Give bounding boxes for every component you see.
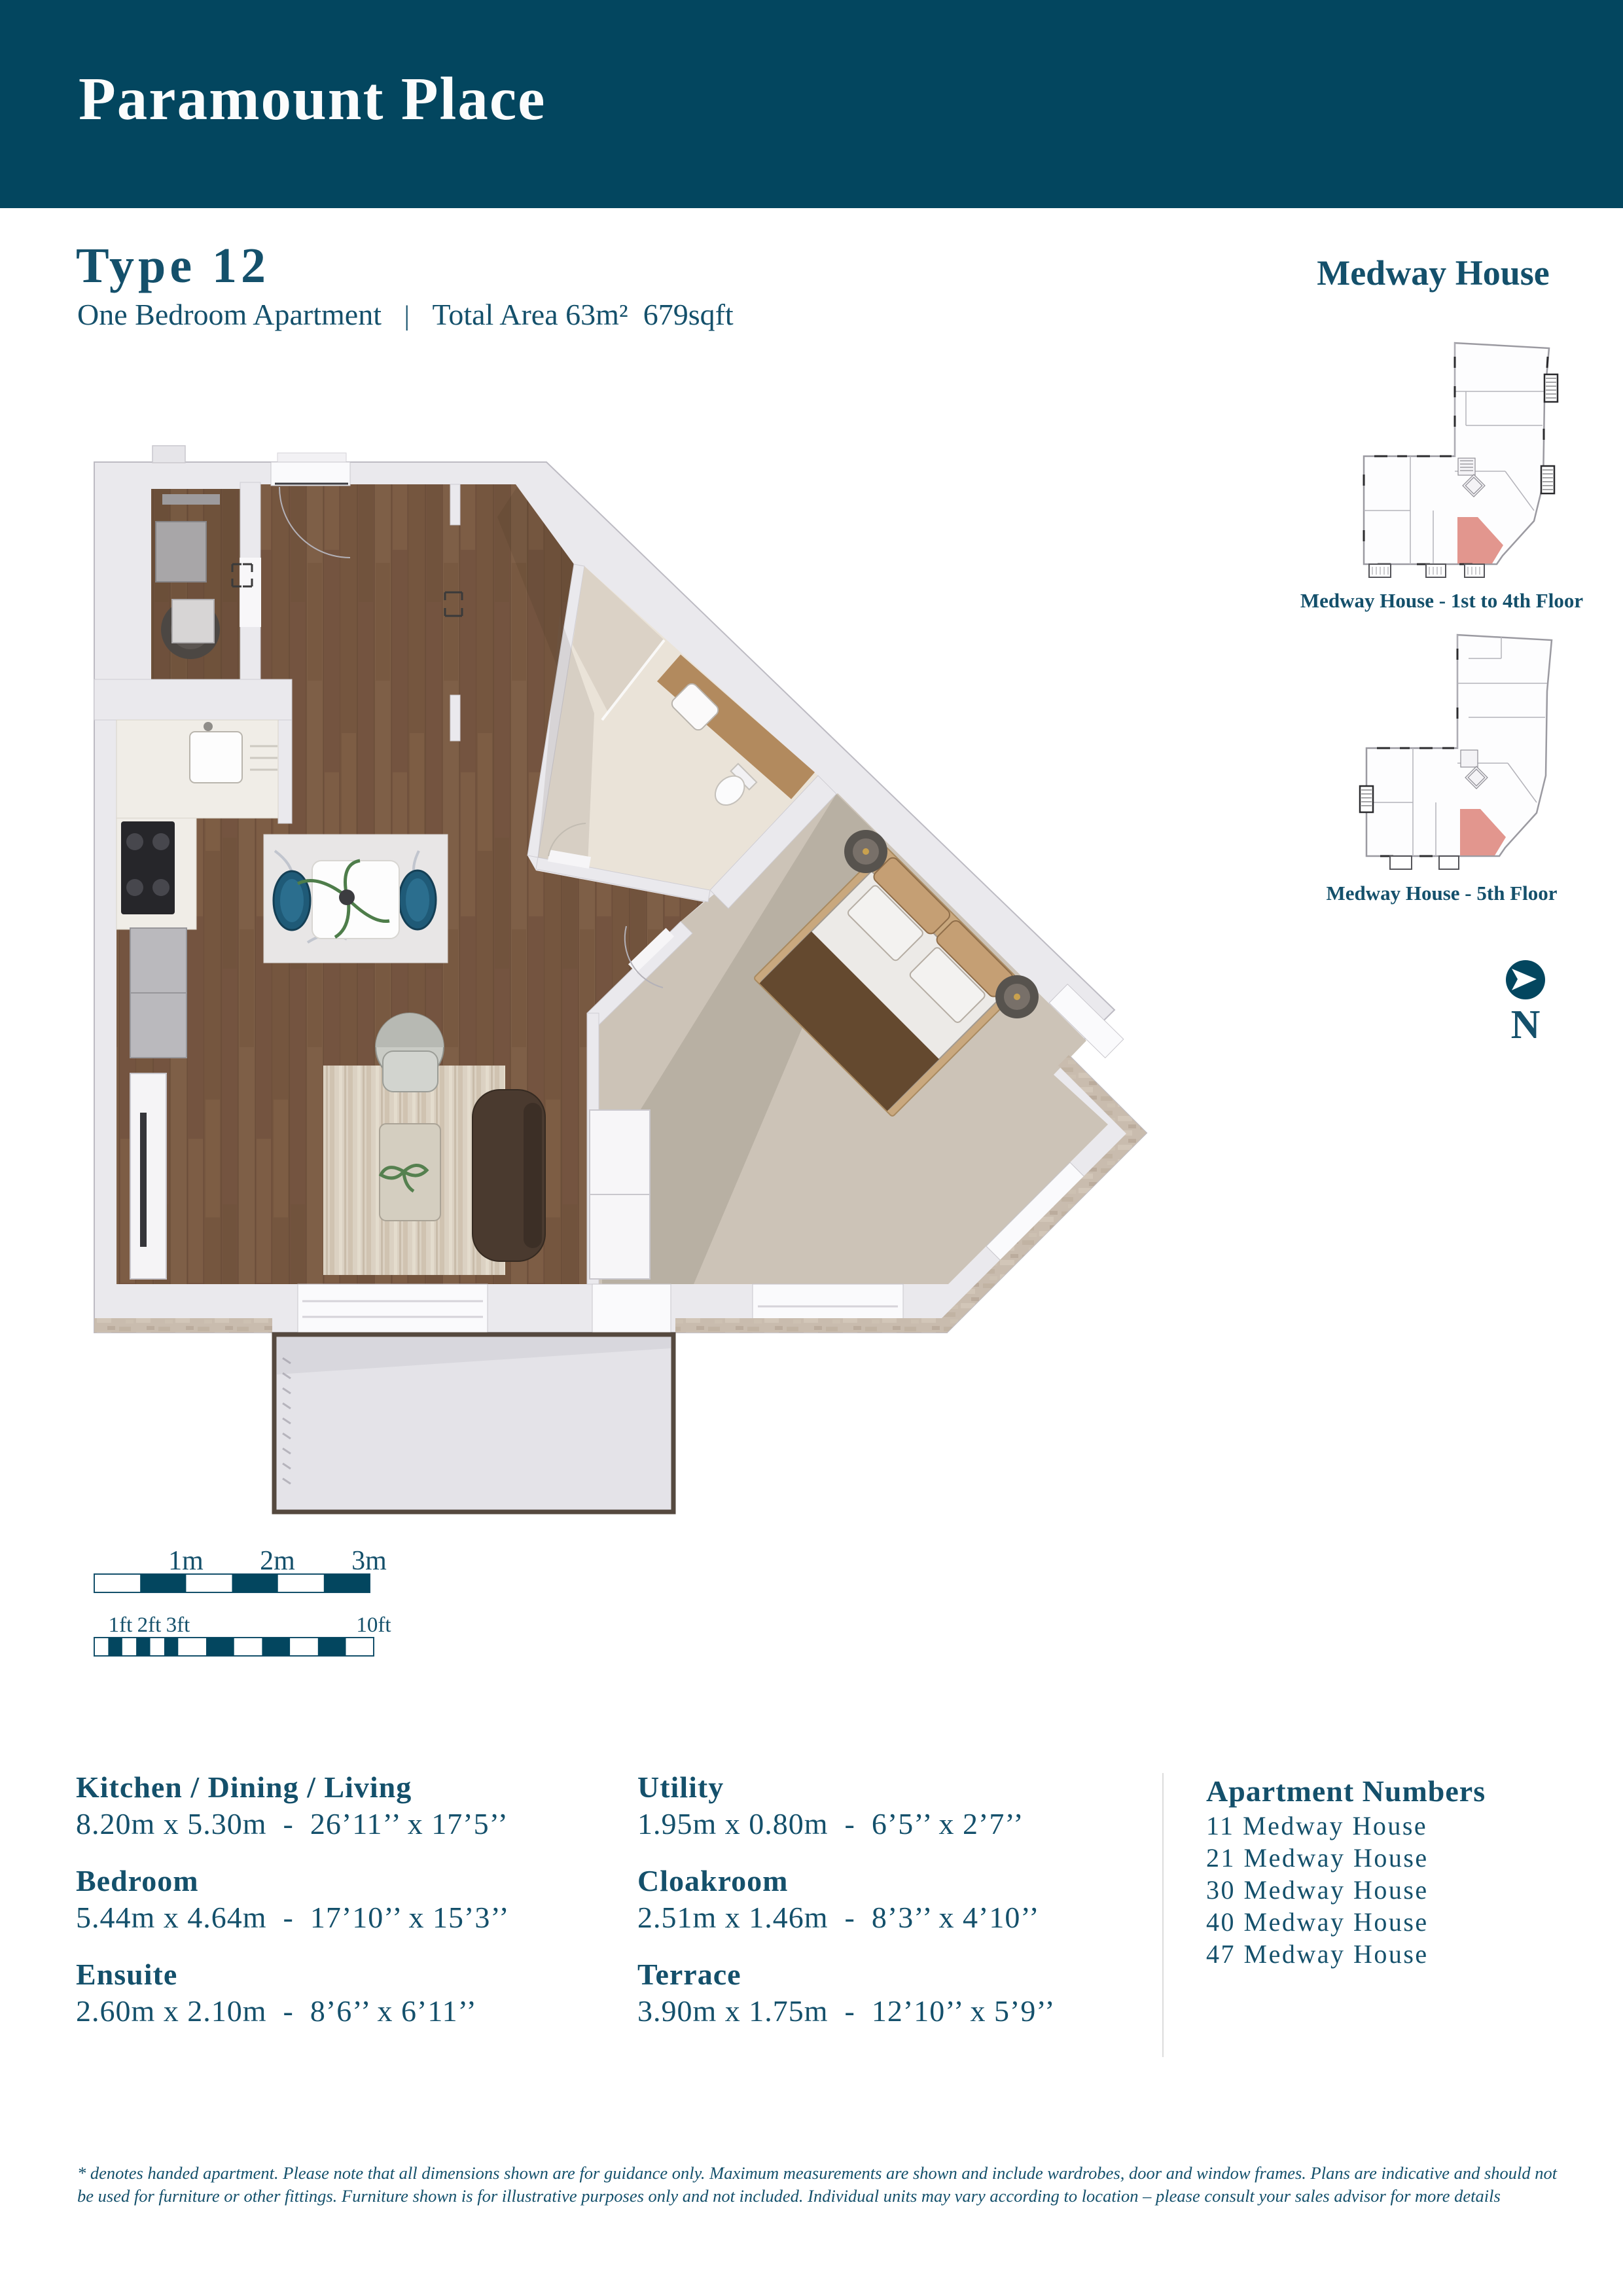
svg-text:3ft: 3ft	[166, 1613, 190, 1637]
svg-text:N: N	[1511, 1003, 1541, 1047]
svg-text:1m: 1m	[168, 1546, 204, 1576]
svg-text:10ft: 10ft	[356, 1613, 391, 1637]
svg-text:1ft: 1ft	[109, 1613, 133, 1637]
svg-text:2ft: 2ft	[137, 1613, 162, 1637]
svg-text:2m: 2m	[260, 1546, 295, 1576]
svg-text:3m: 3m	[351, 1546, 387, 1576]
